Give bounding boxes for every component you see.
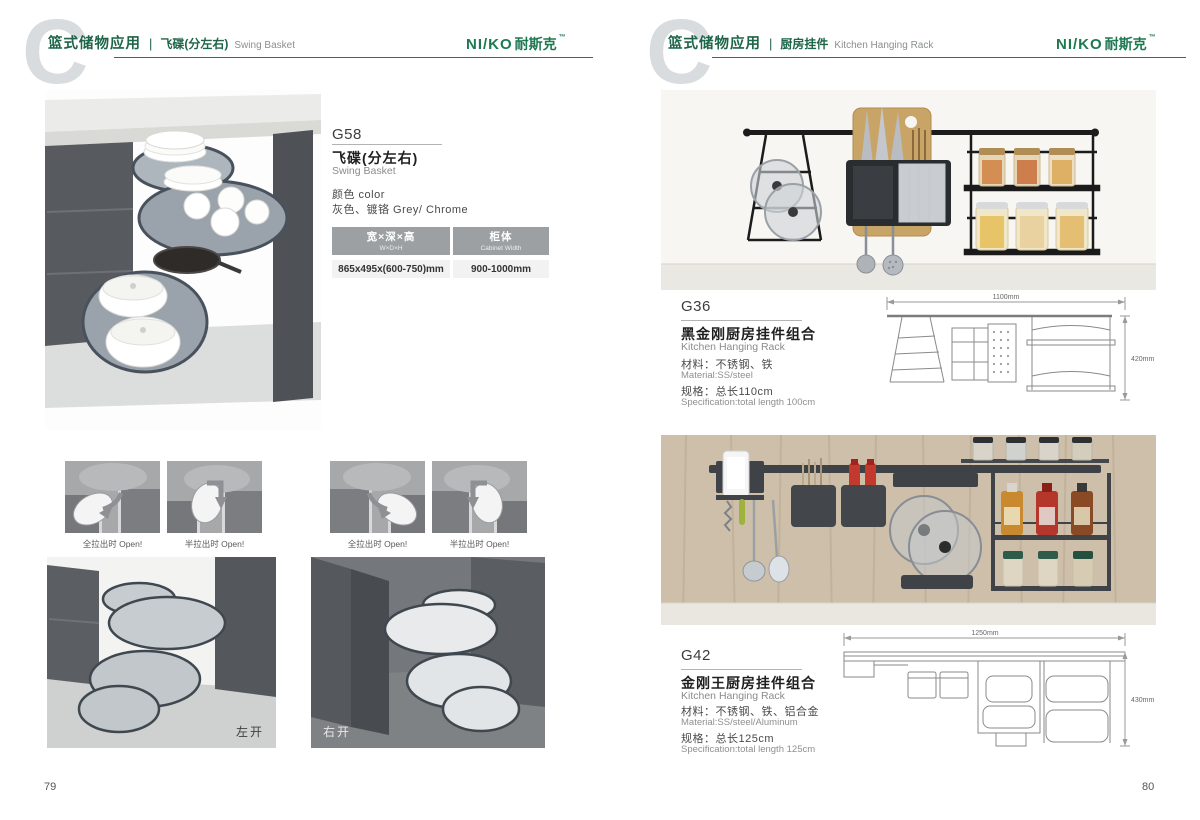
g36-photo — [661, 90, 1156, 290]
diagram-caption: 半拉出时 Open! — [185, 538, 245, 550]
header-subtitle-en: Kitchen Hanging Rack — [834, 40, 933, 51]
g36-photo-art — [661, 90, 1156, 290]
page-header: 篮式储物应用 | 飞碟(分左右) Swing Basket — [48, 32, 295, 53]
spec-en: Specification:total length 125cm — [681, 744, 815, 755]
header-divider: | — [149, 36, 152, 51]
right-open-photo-art — [311, 557, 545, 748]
g42-drawing-art: 1250mm — [830, 628, 1160, 755]
right-open-label: 右开 — [323, 723, 351, 740]
nisko-logo: NI/KO 耐斯克 ™ — [466, 34, 566, 54]
g36-drawing: 1100mm — [880, 290, 1168, 417]
dim-height-label: 430mm — [1131, 697, 1155, 704]
left-open-label: 左开 — [236, 723, 264, 740]
diagram-half-open: 半拉出时 Open! — [167, 461, 262, 550]
catalog-spread: C 篮式储物应用 | 飞碟(分左右) Swing Basket NI/KO 耐斯… — [0, 0, 1200, 820]
material-en: Material:SS/steel/Aluminum — [681, 717, 798, 728]
code-rule — [332, 144, 442, 145]
diagram-half-open-mirrored: 半拉出时 Open! — [432, 461, 527, 550]
logo-cjk: 耐斯克 — [1105, 34, 1147, 54]
spec-en: Specification:total length 100cm — [681, 397, 815, 408]
spec-col2-value: 900-1000mm — [453, 260, 549, 278]
left-open-photo: 左开 — [47, 557, 276, 748]
spec-col2-header: 柜体 Cabinet Width — [453, 227, 549, 255]
material-en: Material:SS/steel — [681, 370, 753, 381]
diagram-caption: 全拉出时 Open! — [348, 538, 408, 550]
diagram-full-open-mirrored: 全拉出时 Open! — [330, 461, 425, 550]
diagram-full-open: 全拉出时 Open! — [65, 461, 160, 550]
g42-photo-art — [661, 435, 1156, 625]
logo-latin: NI/KO — [466, 36, 513, 53]
page-number-left: 79 — [44, 781, 56, 793]
header-subtitle-cn: 飞碟(分左右) — [160, 35, 228, 52]
logo-latin: NI/KO — [1056, 36, 1103, 53]
header-rule — [114, 57, 593, 58]
spec-col1-header-cn: 宽×深×高 — [332, 229, 450, 244]
logo-trademark: ™ — [1149, 34, 1156, 41]
dim-width-label: 1100mm — [993, 294, 1020, 301]
diagram-full-open-art — [65, 461, 160, 533]
page-number-right: 80 — [1142, 781, 1154, 793]
right-open-photo: 右开 — [311, 557, 545, 748]
logo-trademark: ™ — [559, 34, 566, 41]
page-header: 篮式储物应用 | 厨房挂件 Kitchen Hanging Rack — [668, 32, 933, 53]
header-subtitle-en: Swing Basket — [234, 40, 295, 51]
spec-col2-header-en: Cabinet Width — [453, 245, 549, 252]
color-value: 灰色、镀铬 Grey/ Chrome — [332, 201, 468, 217]
spec-col1-header: 宽×深×高 W×D×H — [332, 227, 450, 255]
product-name-en: Kitchen Hanging Rack — [681, 341, 785, 353]
g36-drawing-art: 1100mm — [880, 290, 1168, 412]
logo-cjk: 耐斯克 — [515, 34, 557, 54]
header-category: 篮式储物应用 — [48, 32, 141, 53]
code-rule — [681, 320, 802, 321]
left-open-photo-art — [47, 557, 276, 748]
product-code: G42 — [681, 647, 711, 664]
page-left: C 篮式储物应用 | 飞碟(分左右) Swing Basket NI/KO 耐斯… — [0, 0, 600, 820]
spec-col1-value: 865x495x(600-750)mm — [332, 260, 450, 278]
product-name-en: Kitchen Hanging Rack — [681, 690, 785, 702]
spec-col2-header-cn: 柜体 — [453, 229, 549, 244]
header-divider: | — [769, 36, 772, 51]
page-right: C 篮式储物应用 | 厨房挂件 Kitchen Hanging Rack NI/… — [600, 0, 1200, 820]
color-label: 颜色 color — [332, 186, 385, 202]
code-rule — [681, 669, 802, 670]
g42-drawing: 1250mm — [830, 628, 1160, 760]
spec-table: 宽×深×高 W×D×H 柜体 Cabinet Width 865x495x(60… — [332, 227, 549, 278]
open-diagrams-left: 全拉出时 Open! 半拉出时 Open! — [65, 461, 262, 550]
dim-width-label: 1250mm — [971, 630, 998, 637]
diagram-caption: 全拉出时 Open! — [83, 538, 143, 550]
header-category: 篮式储物应用 — [668, 32, 761, 53]
g42-photo — [661, 435, 1156, 625]
nisko-logo: NI/KO 耐斯克 ™ — [1056, 34, 1156, 54]
swing-basket-main-photo — [45, 90, 321, 430]
product-code: G36 — [681, 298, 711, 315]
header-subtitle-cn: 厨房挂件 — [780, 35, 828, 52]
product-code: G58 — [332, 126, 362, 143]
diagram-half-open-art — [432, 461, 527, 533]
diagram-full-open-art — [330, 461, 425, 533]
pasta-jars — [976, 202, 1088, 250]
diagram-half-open-art — [167, 461, 262, 533]
spice-jars — [979, 148, 1075, 186]
spec-col1-header-en: W×D×H — [332, 245, 450, 252]
open-diagrams-right: 全拉出时 Open! 半拉出时 Open! — [330, 461, 527, 550]
diagram-caption: 半拉出时 Open! — [450, 538, 510, 550]
header-rule — [712, 57, 1186, 58]
dim-height-label: 420mm — [1131, 356, 1155, 363]
swing-basket-photo-art — [45, 90, 321, 430]
product-name-en: Swing Basket — [332, 165, 396, 177]
